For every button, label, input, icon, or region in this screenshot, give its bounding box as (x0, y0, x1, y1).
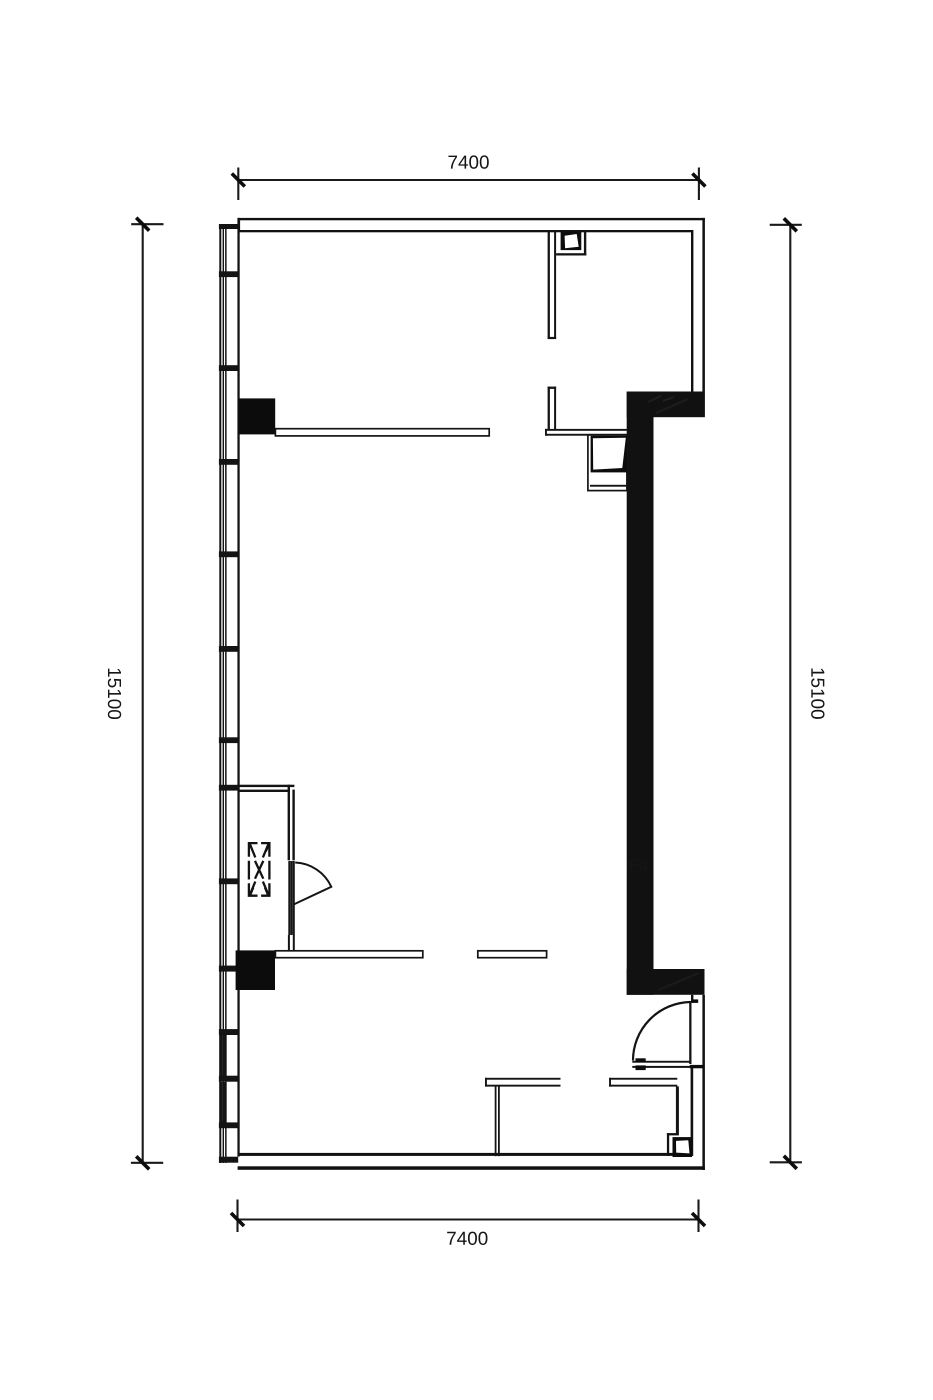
svg-text:Fa: Fa (629, 857, 648, 874)
